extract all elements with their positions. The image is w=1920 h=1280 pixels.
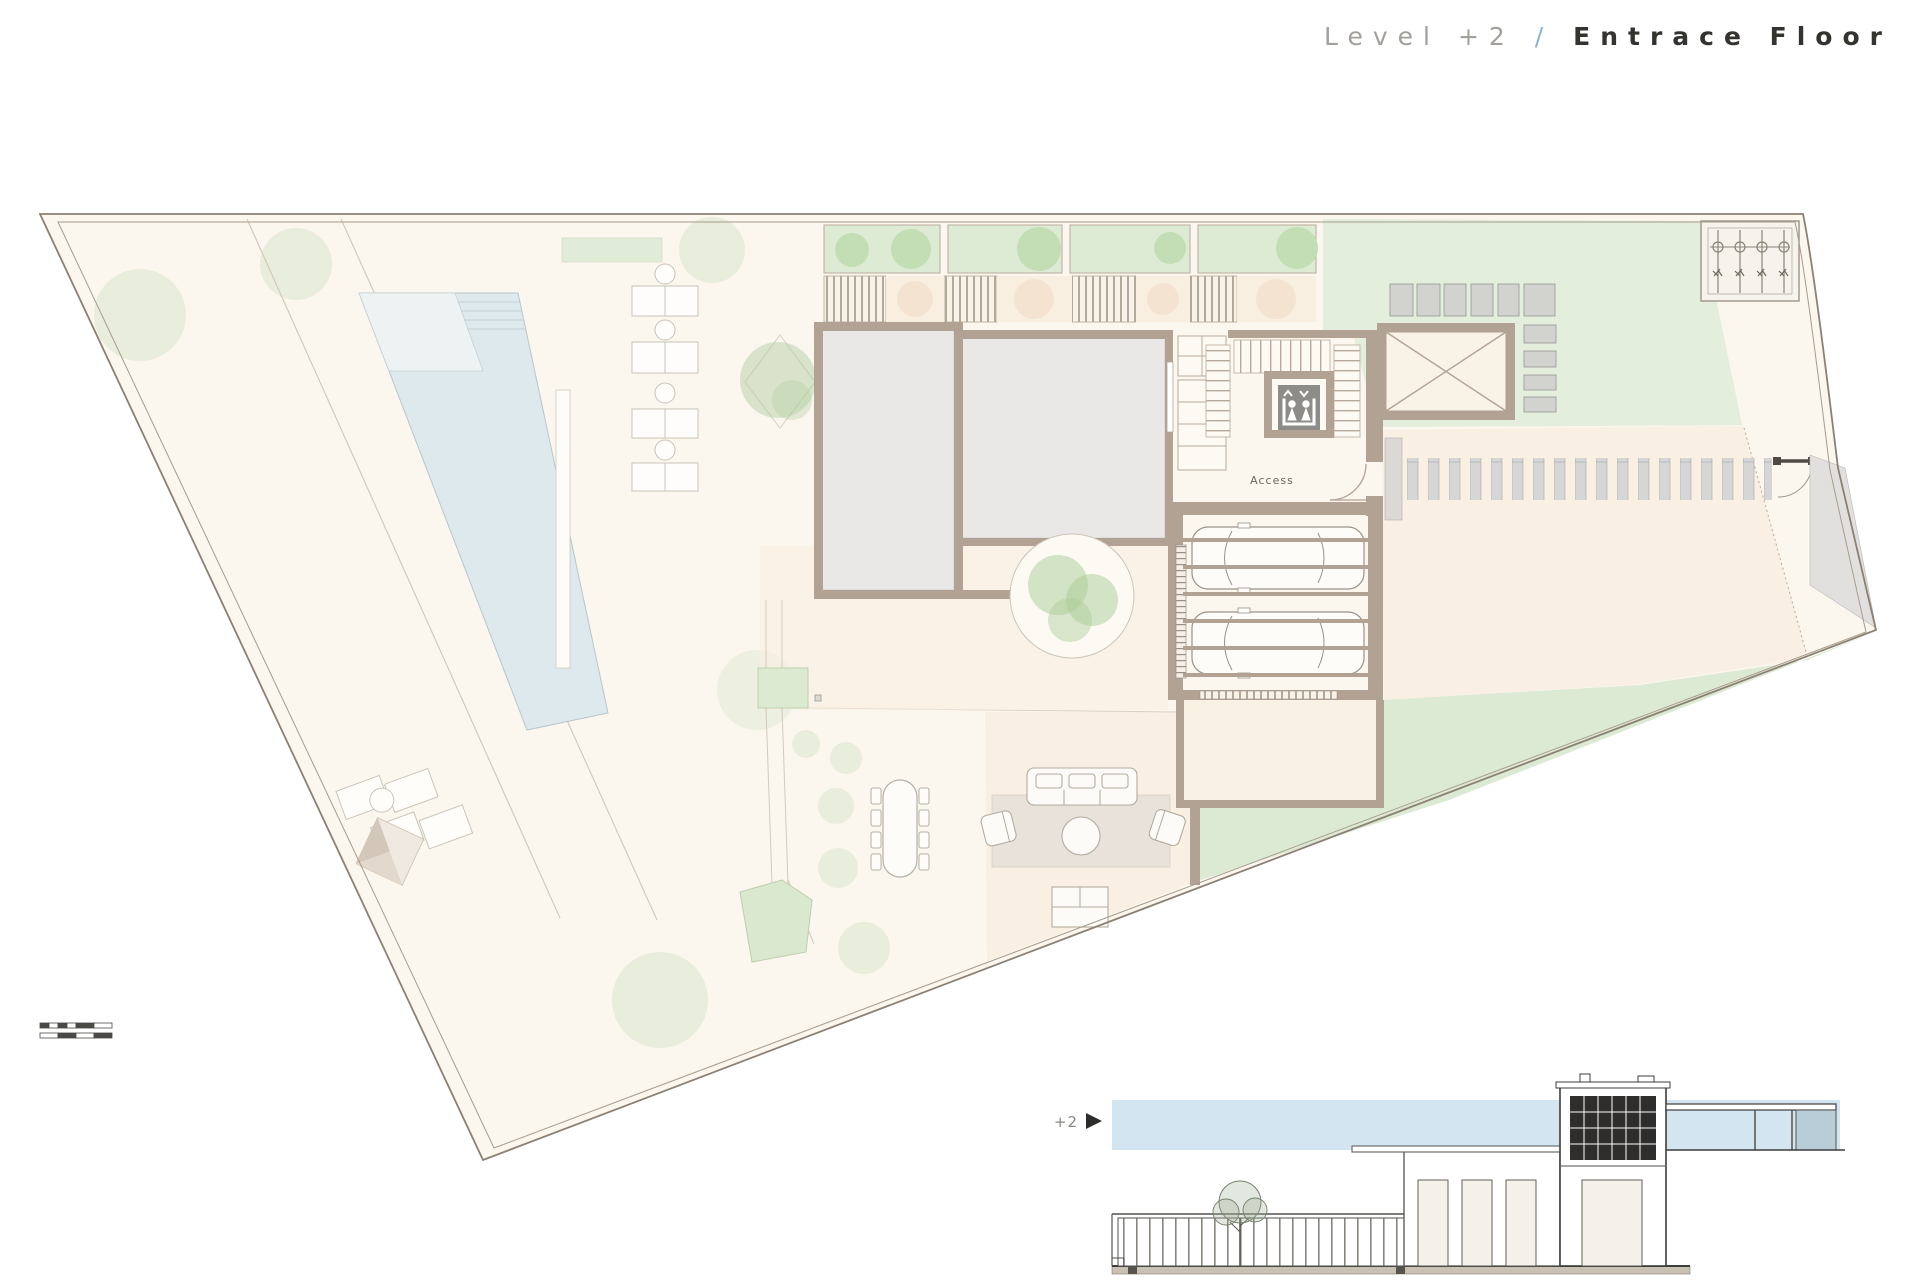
section-lower-wing: [1118, 1218, 1404, 1266]
pergola-strip: [824, 276, 1316, 322]
hedge-strip: [562, 238, 662, 262]
striped-walkway: [1398, 458, 1772, 500]
drain-point: [815, 695, 821, 701]
planter-bed-south: [740, 880, 812, 962]
window-strip: [1167, 362, 1173, 432]
section-tall-block: [1556, 1074, 1670, 1266]
pool-side-wall: [556, 390, 570, 668]
floor-plan-sheet: Level +2 / Entrace Floor: [0, 0, 1920, 1280]
trellis-box: [1701, 221, 1799, 301]
floor-plan-canvas: Access: [0, 0, 1920, 1280]
coffee-table: [1062, 817, 1100, 855]
access-label: Access: [1250, 474, 1294, 487]
room-west: [822, 330, 954, 590]
section-level-label: +2: [1054, 1113, 1078, 1131]
courtyard-tree: [1010, 534, 1134, 658]
planter-boxes-row: [824, 225, 1318, 273]
ottoman-bench: [1052, 887, 1108, 927]
elevator: [1264, 371, 1334, 438]
scale-bar: [40, 1023, 112, 1038]
room-east: [962, 338, 1165, 538]
garage-hatch-south: [1200, 691, 1337, 699]
sofa: [1027, 768, 1137, 805]
car: [1192, 523, 1364, 593]
section-drawing: +2: [1054, 1074, 1845, 1274]
garage-door-west: [1176, 545, 1186, 678]
level-marker-arrow-icon: [1086, 1113, 1102, 1129]
planter-box-path: [758, 668, 808, 708]
garden-room: [1184, 700, 1376, 800]
armchair-left: [980, 810, 1018, 848]
car: [1192, 608, 1364, 678]
skylight-void: [1377, 323, 1515, 420]
